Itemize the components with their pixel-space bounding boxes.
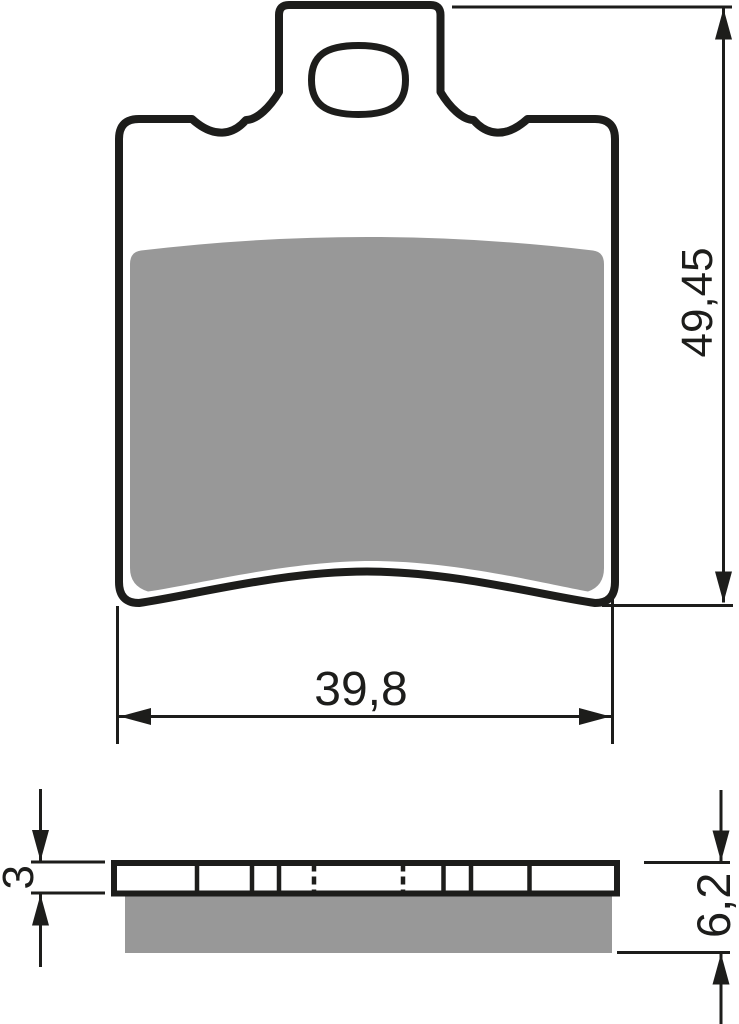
svg-text:39,8: 39,8	[314, 663, 407, 716]
svg-text:6,2: 6,2	[687, 873, 739, 938]
svg-text:3: 3	[0, 865, 43, 889]
svg-text:49,45: 49,45	[673, 247, 722, 357]
